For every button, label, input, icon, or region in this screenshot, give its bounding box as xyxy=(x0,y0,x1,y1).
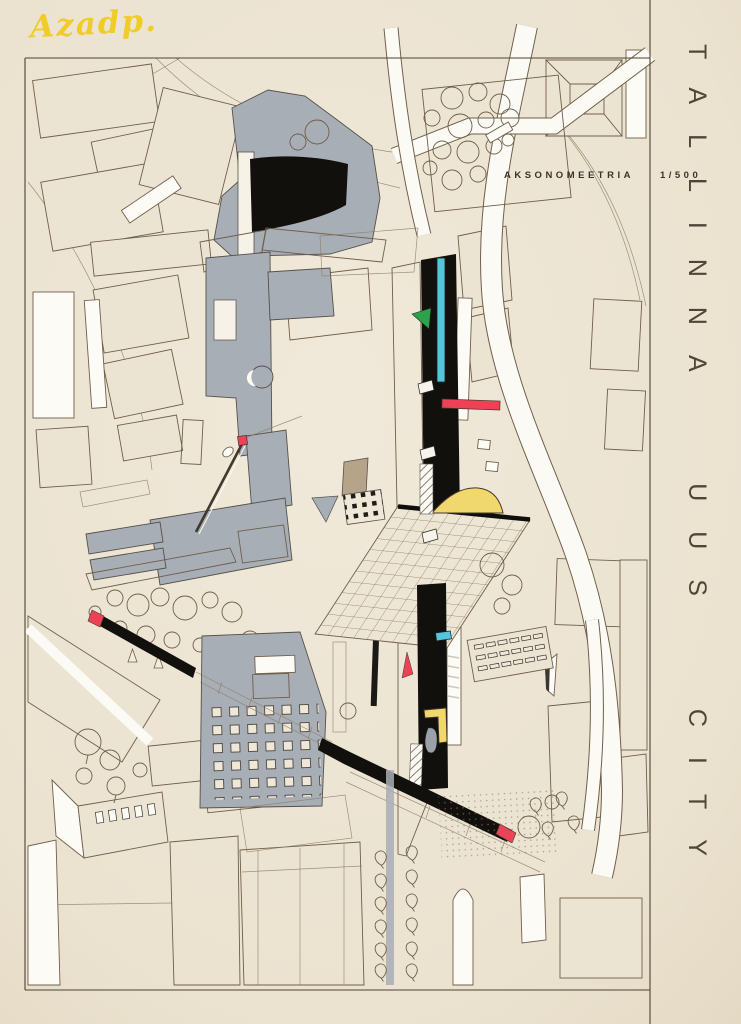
poster: Azadp. AKSONOMEETRIA 1/500 TALLINNA UUS … xyxy=(0,0,741,1024)
axonometric-drawing xyxy=(0,0,741,1024)
cyan-bar-lower xyxy=(436,631,452,641)
cyan-stripe xyxy=(437,258,445,382)
drawing-annotation: AKSONOMEETRIA 1/500 xyxy=(504,170,701,181)
poster-title-vertical: TALLINNA UUS CITY xyxy=(682,44,711,1004)
red-crane-tip xyxy=(237,435,247,445)
red-bar xyxy=(442,399,500,410)
annotation-label: AKSONOMEETRIA xyxy=(504,170,634,181)
artist-signature: Azadp. xyxy=(29,3,159,46)
